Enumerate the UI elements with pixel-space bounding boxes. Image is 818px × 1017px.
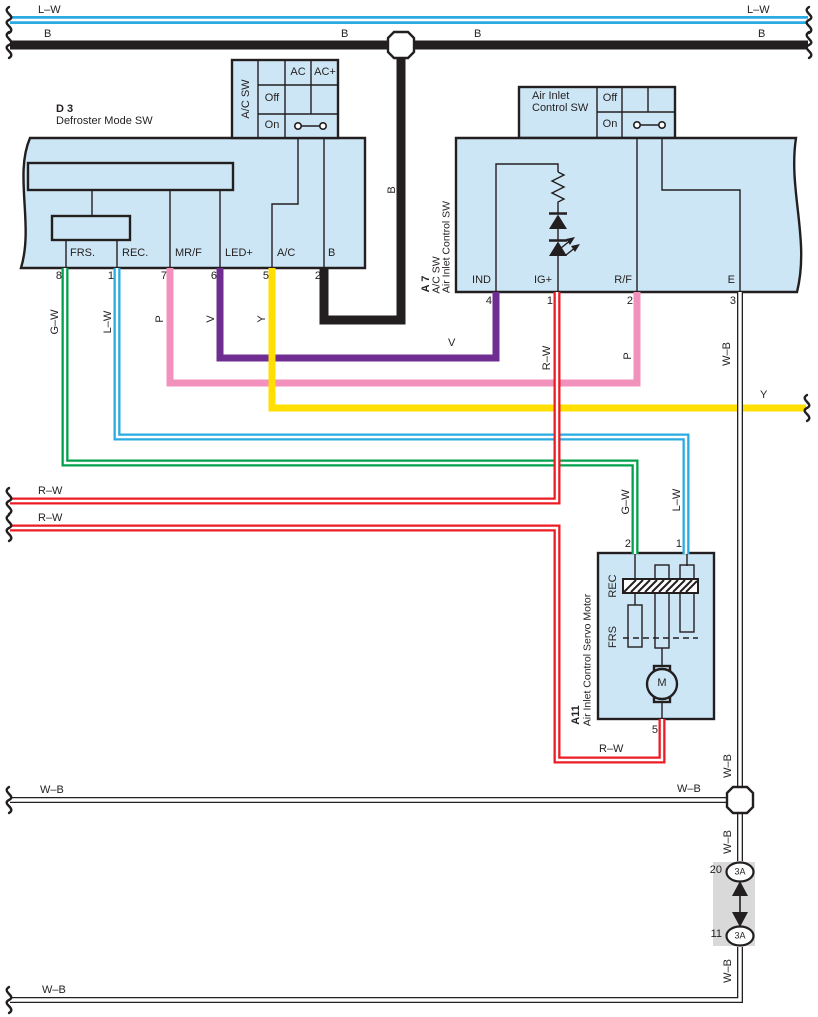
fuse-amp-bottom: 3A — [734, 931, 745, 940]
wire-rw-ig — [10, 292, 557, 501]
a11-label-rec: REC — [608, 574, 620, 597]
wire-label-rw-vertical: R–W — [542, 346, 554, 370]
ac-sw-row-on: On — [265, 120, 280, 132]
junction-octagon-bottom — [727, 787, 753, 813]
air-inlet-table-title-1: Air Inlet — [532, 91, 569, 103]
a11-pin-2: 2 — [605, 539, 631, 551]
a7-pin-3: 3 — [710, 296, 736, 308]
wire-label-b-2: B — [341, 29, 348, 41]
a7-air-inlet-control-sw-box — [456, 138, 801, 292]
wire-label-wb-h-left: W–B — [40, 785, 64, 797]
junction-pin-11: 11 — [698, 929, 722, 941]
wire-label-p-left: P — [155, 315, 167, 322]
fuse-amp-top: 3A — [734, 867, 745, 876]
junction-octagon-top — [388, 32, 414, 58]
ac-sw-table-title: A/C SW — [241, 79, 253, 118]
wire-label-v-mid: V — [448, 338, 455, 350]
a7-sub2: Air Inlet Control SW — [441, 201, 452, 293]
wire-label-b-4: B — [758, 29, 765, 41]
wire-label-wb-v4: W–B — [723, 959, 735, 983]
wire-rw-servo — [10, 528, 662, 760]
d3-name: Defroster Mode SW — [56, 116, 153, 128]
wire-label-b-1: B — [44, 29, 51, 41]
wire-label-wb-bottom: W–B — [42, 985, 66, 997]
wire-label-rw-2: R–W — [38, 513, 62, 525]
wire-label-wb-h-right: W–B — [677, 784, 701, 796]
diagram-canvas — [0, 0, 818, 1017]
a11-pin-1: 1 — [656, 539, 682, 551]
wire-label-y-right: Y — [760, 390, 767, 402]
a11-label-frs: FRS — [608, 626, 620, 648]
air-inlet-row-on: On — [603, 119, 618, 131]
d3-code: D 3 — [56, 104, 73, 116]
d3-terminal-rec: REC. — [122, 248, 148, 260]
wire-label-lw-right2: L–W — [672, 489, 684, 512]
a7-pin-1: 1 — [527, 296, 553, 308]
a7-terminal-ig: IG+ — [518, 275, 552, 287]
d3-terminal-led: LED+ — [225, 248, 253, 260]
a7-pin-4: 4 — [466, 296, 492, 308]
air-inlet-table-title-2: Control SW — [532, 103, 588, 115]
d3-terminal-b: B — [328, 248, 335, 260]
d3-pin-8: 8 — [36, 271, 62, 283]
wire-label-rw-bottom: R–W — [599, 744, 623, 756]
d3-pin-2: 2 — [295, 271, 321, 283]
a7-terminal-e: E — [701, 275, 735, 287]
a7-pin-2: 2 — [607, 296, 633, 308]
a11-pin-5: 5 — [632, 725, 658, 737]
d3-pin-6: 6 — [191, 271, 217, 283]
d3-pin-7: 7 — [141, 271, 167, 283]
wire-label-gw-right: G–W — [621, 489, 633, 514]
d3-terminal-ac: A/C — [277, 248, 295, 260]
wire-label-rw-1: R–W — [38, 486, 62, 498]
a7-terminal-rf: R/F — [598, 275, 632, 287]
wire-label-wb-v2: W–B — [723, 754, 735, 778]
a7-terminal-ind: IND — [457, 275, 491, 287]
wire-label-wb-v1: W–B — [722, 342, 734, 366]
wiring-diagram: L–W L–W B B B B B D 3 Defroster Mode SW … — [0, 0, 818, 1017]
d3-pin-5: 5 — [243, 271, 269, 283]
d3-terminal-mrf: MR/F — [175, 248, 202, 260]
wire-label-y-left: Y — [257, 315, 269, 322]
wire-label-wb-v3: W–B — [723, 830, 735, 854]
wire-label-p-right: P — [623, 352, 635, 359]
d3-pin-1: 1 — [88, 271, 114, 283]
ac-sw-row-off: Off — [265, 93, 279, 105]
a11-motor-m: M — [657, 678, 666, 690]
wire-label-b-3: B — [474, 29, 481, 41]
ac-sw-col-acplus: AC+ — [314, 67, 336, 79]
ac-sw-col-ac: AC — [290, 67, 305, 79]
junction-pin-20: 20 — [698, 865, 722, 877]
wire-label-v-left: V — [206, 315, 218, 322]
wire-label-lw-right: L–W — [747, 5, 770, 17]
rec-contact-bar — [623, 579, 698, 593]
wire-label-b-vertical: B — [387, 186, 399, 193]
wire-label-gw-left: G–W — [50, 309, 62, 334]
air-inlet-row-off: Off — [603, 93, 617, 105]
wire-label-lw-rec: L–W — [103, 311, 115, 334]
wire-label-lw-left: L–W — [38, 5, 61, 17]
d3-terminal-frs: FRS. — [70, 248, 95, 260]
a11-name: Air Inlet Control Servo Motor — [582, 594, 593, 726]
